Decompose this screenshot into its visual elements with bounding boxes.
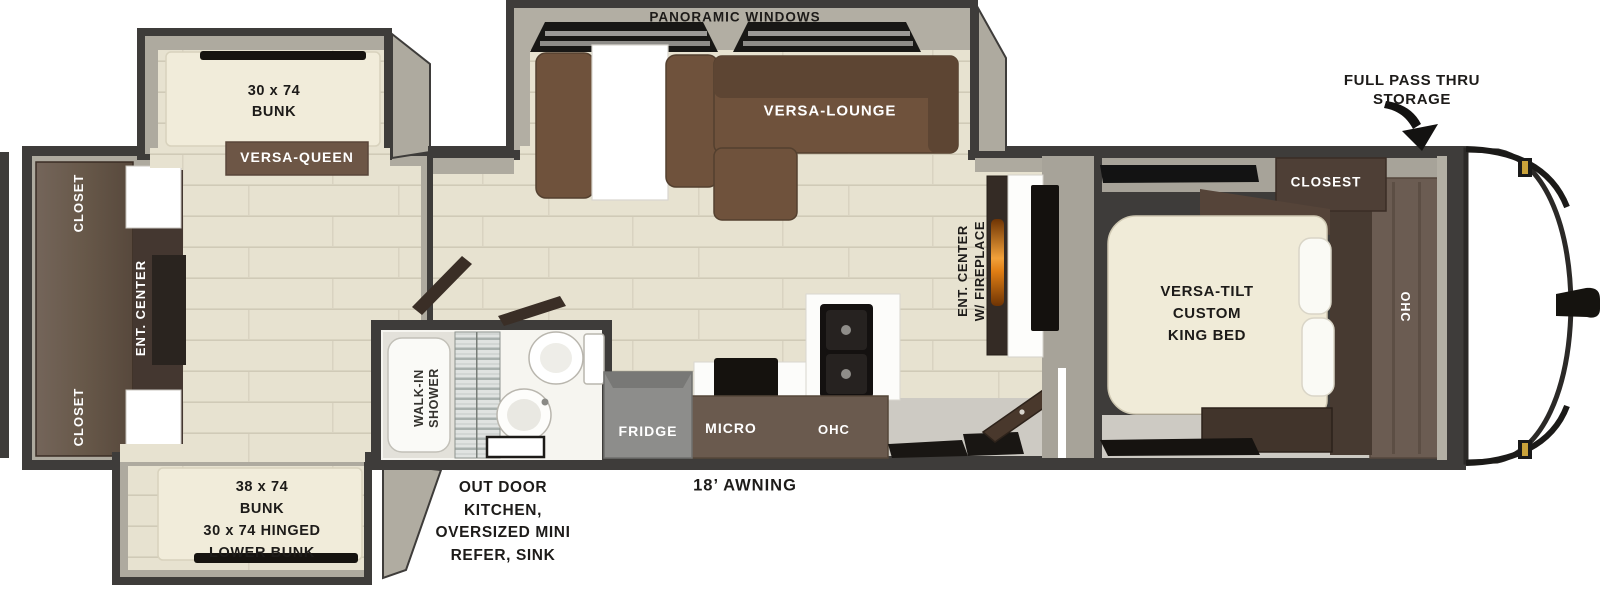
- bed-headboard: [1330, 205, 1372, 455]
- kitchen-ohc-label: OHC: [818, 421, 850, 439]
- micro-label: MICRO: [705, 419, 757, 439]
- bathroom-sink: [497, 389, 551, 441]
- floorplan: PANORAMIC WINDOWS VERSA-LOUNGE 30 x 74 B…: [0, 0, 1600, 607]
- pillow: [1302, 318, 1334, 396]
- versa-lounge-label: VERSA-LOUNGE: [764, 101, 897, 122]
- full-pass-thru-label: FULL PASS THRU STORAGE: [1344, 71, 1480, 109]
- bedroom-closet-label: CLOSEST: [1291, 174, 1362, 193]
- panoramic-windows-label: PANORAMIC WINDOWS: [649, 9, 820, 28]
- fireplace: [991, 219, 1004, 306]
- rear-wardrobe-unit: [36, 162, 186, 456]
- stabilizer-jack: [1518, 158, 1532, 177]
- versa-queen-label: VERSA-QUEEN: [240, 148, 354, 168]
- outdoor-kitchen-label: OUT DOOR KITCHEN, OVERSIZED MINI REFER, …: [436, 477, 571, 567]
- lounge-table: [592, 45, 668, 200]
- walk-in-shower-label: WALK-IN SHOWER: [412, 368, 442, 428]
- living-tv: [1031, 185, 1059, 331]
- ent-center-rear-label: ENT. CENTER: [132, 260, 150, 356]
- rear-bumper: [0, 152, 9, 458]
- awning-label: 18’ AWNING: [693, 474, 797, 497]
- king-bed-label: VERSA-TILT CUSTOM KING BED: [1160, 281, 1253, 347]
- fridge-label: FRIDGE: [619, 422, 678, 442]
- cooktop: [714, 358, 778, 400]
- rear-tv: [152, 255, 186, 365]
- pillow: [1299, 238, 1331, 314]
- front-cap: [1437, 146, 1600, 466]
- toilet: [529, 332, 604, 384]
- ent-center-fireplace-label: ENT. CENTER W/ FIREPLACE: [954, 221, 988, 321]
- bath-mat: [487, 437, 544, 457]
- bathroom: [371, 320, 612, 470]
- bedroom-ohc-label: OHC: [1395, 292, 1413, 323]
- kitchen-sink: [820, 304, 873, 398]
- fridge: [604, 372, 692, 458]
- top-bunk-label: 30 x 74 BUNK: [248, 81, 301, 123]
- stabilizer-jack: [1518, 440, 1532, 459]
- closet-bottom-label: CLOSET: [70, 388, 88, 447]
- lower-bunk-label: 38 x 74 BUNK 30 x 74 HINGED LOWER BUNK: [203, 476, 320, 564]
- bedroom-mat: [1100, 438, 1260, 456]
- bedroom-vent: [1100, 165, 1259, 183]
- closet-top-label: CLOSET: [70, 174, 88, 233]
